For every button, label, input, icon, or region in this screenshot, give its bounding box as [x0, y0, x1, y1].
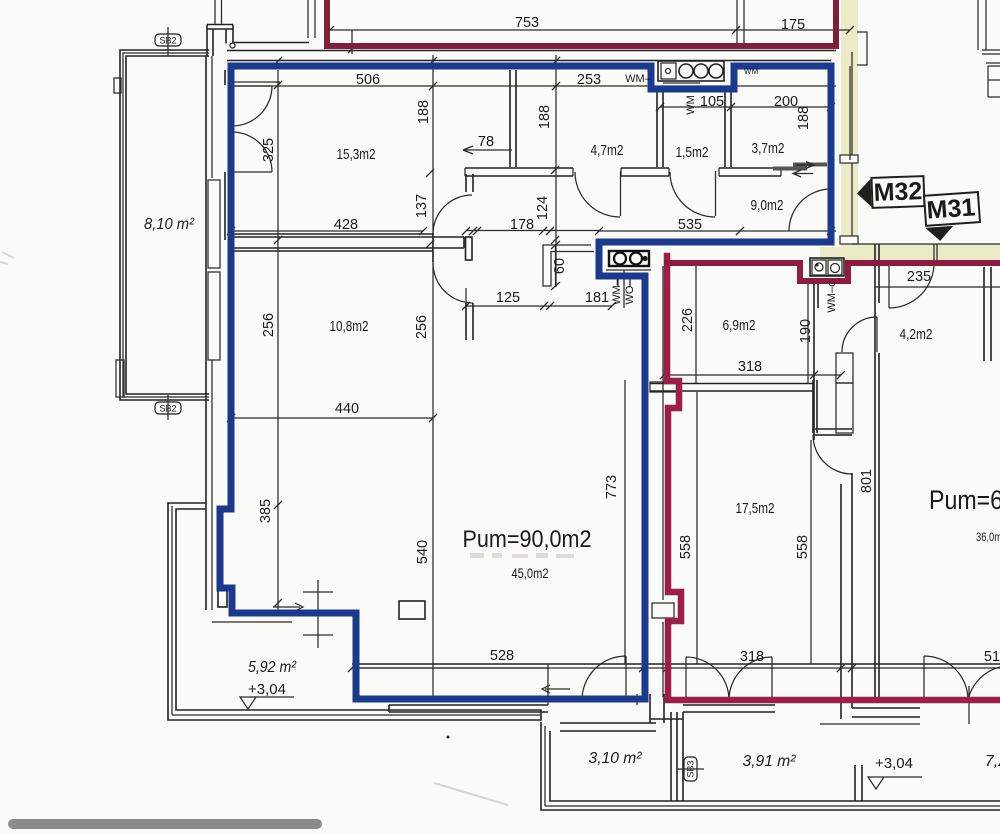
svg-text:200: 200 [774, 94, 798, 110]
svg-text:175: 175 [781, 17, 805, 33]
svg-text:124: 124 [535, 196, 551, 220]
svg-text:510: 510 [984, 649, 1000, 665]
svg-text:4,2m2: 4,2m2 [900, 326, 933, 343]
svg-text:226: 226 [680, 308, 696, 332]
svg-text:105: 105 [700, 94, 724, 110]
svg-text:773: 773 [604, 475, 620, 499]
svg-text:181: 181 [585, 290, 609, 306]
svg-text:190: 190 [798, 319, 814, 343]
svg-text:7,2: 7,2 [985, 753, 1000, 770]
svg-text:17,5m2: 17,5m2 [736, 500, 775, 517]
svg-text:9,0m2: 9,0m2 [751, 197, 784, 214]
svg-text:440: 440 [335, 401, 359, 417]
svg-text:M31: M31 [926, 193, 977, 224]
svg-text:535: 535 [678, 217, 702, 233]
svg-text:15,3m2: 15,3m2 [337, 146, 376, 163]
svg-text:WM–c: WM–c [826, 281, 838, 313]
svg-text:WM: WM [685, 95, 697, 115]
svg-text:WM–: WM– [611, 278, 623, 305]
svg-text:Pum=6: Pum=6 [929, 485, 1000, 515]
svg-text:558: 558 [795, 535, 811, 559]
svg-text:253: 253 [577, 72, 601, 88]
svg-text:1,5m2: 1,5m2 [676, 144, 709, 161]
svg-text:45,0m2: 45,0m2 [512, 565, 549, 581]
svg-text:137: 137 [414, 194, 430, 218]
svg-text:10,8m2: 10,8m2 [330, 318, 369, 335]
svg-text:188: 188 [537, 105, 553, 129]
svg-text:256: 256 [261, 313, 277, 337]
svg-text:78: 78 [478, 134, 494, 150]
svg-text:+3,04: +3,04 [875, 755, 913, 772]
svg-text:318: 318 [740, 649, 764, 665]
svg-text:4,7m2: 4,7m2 [591, 142, 624, 159]
svg-text:8,10 m²: 8,10 m² [144, 216, 195, 233]
svg-text:188: 188 [416, 100, 432, 124]
svg-text:178: 178 [510, 217, 534, 233]
svg-text:528: 528 [490, 648, 514, 664]
svg-text:385: 385 [258, 499, 274, 523]
svg-text:188: 188 [796, 106, 812, 130]
svg-text:3,7m2: 3,7m2 [752, 140, 785, 157]
svg-text:+3,04: +3,04 [248, 681, 286, 698]
svg-text:318: 318 [738, 359, 762, 375]
svg-text:60: 60 [552, 258, 568, 274]
svg-text:36,0m: 36,0m [976, 530, 1000, 544]
svg-text:325: 325 [261, 138, 277, 162]
svg-text:506: 506 [356, 72, 380, 88]
svg-text:558: 558 [678, 535, 694, 559]
svg-text:WM: WM [744, 67, 759, 76]
svg-text:3,10 m²: 3,10 m² [589, 750, 643, 767]
svg-text:3,91 m²: 3,91 m² [743, 753, 797, 770]
svg-text:256: 256 [414, 315, 430, 339]
svg-text:Pum=90,0m2: Pum=90,0m2 [463, 526, 592, 553]
svg-text:428: 428 [334, 217, 358, 233]
svg-text:125: 125 [496, 290, 520, 306]
svg-text:WO–: WO– [624, 279, 636, 305]
svg-text:M32: M32 [873, 177, 923, 207]
svg-text:6,9m2: 6,9m2 [723, 317, 756, 334]
svg-text:540: 540 [415, 540, 431, 564]
svg-text:753: 753 [515, 15, 539, 31]
svg-text:235: 235 [907, 269, 931, 285]
svg-text:5,92 m²: 5,92 m² [248, 659, 297, 676]
svg-text:801: 801 [859, 469, 875, 493]
svg-text:WM–: WM– [625, 73, 652, 85]
